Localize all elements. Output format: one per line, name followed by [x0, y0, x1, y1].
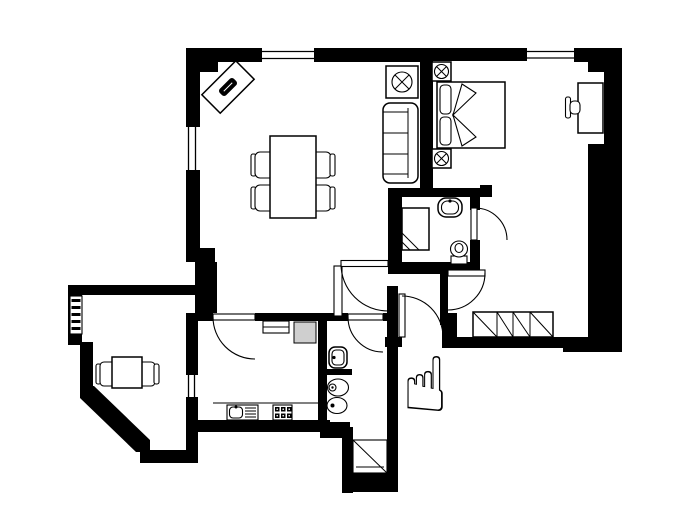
basin-inner [442, 201, 459, 214]
burner-dot [276, 415, 278, 417]
thin-partition [334, 266, 342, 316]
radiator [70, 296, 82, 334]
door-leaf [448, 270, 485, 276]
pointing-hand-icon: ☝ [402, 340, 448, 429]
side-table-with-plant [386, 66, 418, 98]
radiator-fin [72, 306, 81, 309]
door-leaf [341, 261, 388, 267]
burner-dot [288, 415, 290, 417]
tap-icon [235, 406, 238, 409]
stove [273, 405, 292, 420]
tap-icon [332, 356, 335, 359]
chair-back [154, 364, 159, 384]
bathroom-washbasin [438, 198, 462, 217]
bidet-bowl [327, 398, 347, 414]
wall-right-upper [604, 62, 622, 146]
chair-back [330, 154, 335, 176]
sofa-body [383, 103, 418, 183]
radiator-fin [72, 313, 81, 316]
wall-bathroom-top [388, 188, 480, 197]
wall-wc-top-stub [383, 313, 397, 321]
burner-dot [282, 408, 284, 410]
burner-dot [282, 415, 284, 417]
door-leaf [213, 314, 255, 320]
pillow [440, 85, 451, 114]
wall-right-step [588, 144, 622, 168]
window-glass [186, 127, 198, 170]
wall-right-notch [588, 62, 604, 72]
built-in-wardrobe [473, 312, 553, 337]
wc-bidet [327, 398, 347, 414]
wall-kitchen-left-upper [186, 313, 198, 375]
wc-washbasin [329, 347, 347, 368]
toilet-bowl-inner [455, 244, 463, 253]
wc-half-wall [327, 369, 352, 375]
door-leaf [348, 314, 383, 320]
sofa [383, 103, 418, 183]
wall-right-lower [588, 166, 622, 352]
wc-toilet [328, 379, 349, 396]
wall-livingroom-sw [195, 262, 217, 313]
door-leaf [471, 208, 477, 240]
bidet-dot [331, 404, 335, 408]
wall-office-top [68, 285, 195, 295]
bathroom-toilet [451, 241, 468, 264]
tap-icon [448, 199, 451, 202]
balcony-opening [185, 375, 199, 397]
sink-basin [230, 407, 243, 418]
wall-bathroom-top-step [480, 185, 492, 197]
storage-shaft [353, 440, 387, 473]
nightstand-with-lamp [432, 62, 451, 81]
shower-tray [402, 208, 429, 250]
wall-corner-step [200, 62, 218, 72]
wall-top-right [574, 48, 622, 62]
floor-plan: ☝ [0, 0, 700, 525]
toilet-dot [331, 386, 333, 388]
wall-hall-bottom [442, 337, 588, 348]
opening-gap [185, 375, 199, 397]
living-room-left-window [186, 127, 198, 170]
wall-left-upper [186, 48, 200, 127]
wall-top-middle [314, 48, 422, 62]
wall-bedroom-top [433, 48, 527, 61]
door-leaf [399, 294, 405, 337]
office-table [112, 357, 142, 388]
double-bed [437, 82, 505, 148]
wall-shaft-bottom [342, 471, 398, 492]
wall-room-divider [420, 48, 433, 196]
chair-back [330, 187, 335, 209]
wall-kitchen-bottom [186, 420, 330, 432]
radiator-fin [72, 299, 81, 302]
desk-top [578, 83, 603, 133]
wall-bathroom-right-upper [470, 188, 480, 210]
wall-left-lower [186, 170, 200, 262]
radiator-fin [72, 320, 81, 323]
pillow [440, 117, 451, 145]
wall-bathroom-right-lower [470, 240, 480, 272]
wall-bedroom-door-stub [430, 262, 448, 274]
wall-office-left-lower [80, 342, 93, 388]
dining-table [270, 136, 316, 218]
nightstand-with-lamp [432, 149, 451, 168]
chair-seat [570, 101, 580, 114]
wall-left-step [200, 248, 215, 262]
burner-dot [276, 408, 278, 410]
floor-plan-page: ☝ [0, 0, 700, 525]
living-room-top-window [262, 50, 314, 60]
radiator-fin [72, 327, 81, 330]
appliance-gray [294, 322, 316, 343]
wall-bathroom-left [388, 188, 402, 272]
shower-base [402, 208, 429, 250]
burner-dot [288, 408, 290, 410]
wall-kitchen-wc-divider [318, 313, 327, 425]
bedroom-top-window [527, 50, 574, 60]
cooker-hood [263, 321, 289, 333]
kitchen-sink [227, 405, 258, 420]
